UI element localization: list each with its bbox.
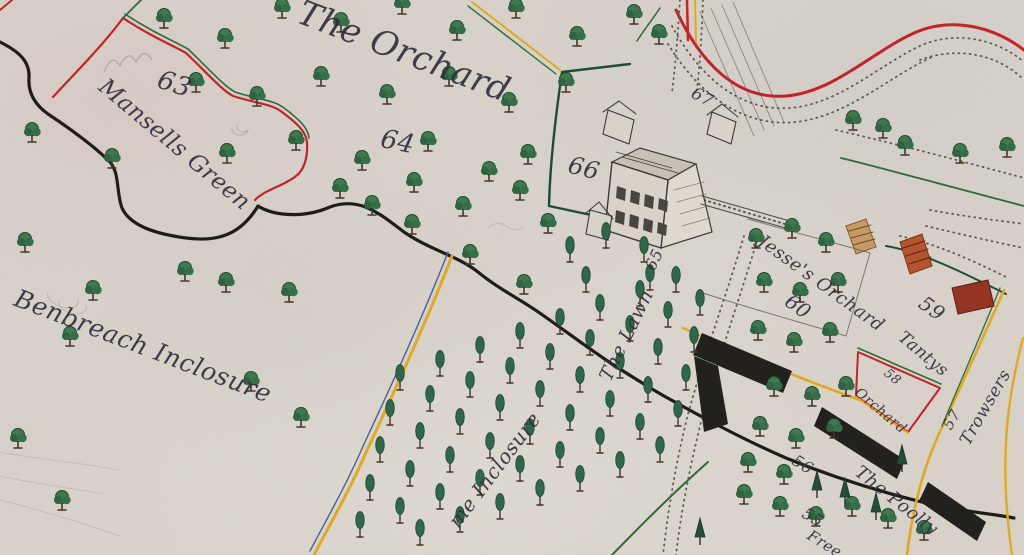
tree-tall-canopy	[672, 267, 681, 284]
tree-round-canopy-shade	[332, 184, 340, 192]
tree-round-canopy-shade	[826, 424, 834, 432]
tree-round-canopy-light	[812, 392, 820, 400]
tree-round-canopy-shade	[880, 514, 888, 522]
tree-tall-canopy	[486, 433, 495, 450]
tree-round-canopy-shade	[845, 116, 853, 124]
tree-round-canopy-shade	[313, 72, 321, 80]
tree-tall-canopy	[596, 295, 605, 312]
tree-round-canopy-light	[301, 413, 309, 421]
tree-round-canopy-shade	[104, 154, 112, 162]
tree-tall-canopy	[546, 344, 555, 361]
estate-map: The Orchard63Mansells Green646667Benbrea…	[0, 0, 1024, 555]
tree-tall-canopy	[690, 327, 699, 344]
tree-tall-canopy	[656, 437, 665, 454]
tree-round-canopy-light	[826, 238, 834, 246]
tree-round-canopy-light	[784, 470, 792, 478]
tree-round-canopy-light	[372, 201, 380, 209]
yellow-strip-top-center	[695, 0, 696, 42]
tree-tall-canopy	[586, 330, 595, 347]
tree-tall-canopy	[436, 351, 445, 368]
tree-tall-canopy	[406, 461, 415, 478]
tree-tall-canopy	[536, 480, 545, 497]
tree-round-canopy-shade	[516, 280, 524, 288]
tree-round-canopy-light	[463, 202, 471, 210]
tree-tall-canopy	[576, 466, 585, 483]
tree-tall-canopy	[566, 237, 575, 254]
tree-round-canopy-shade	[481, 167, 489, 175]
tree-round-canopy-shade	[54, 496, 62, 504]
tree-tall-canopy	[456, 409, 465, 426]
tree-round-canopy-shade	[772, 502, 780, 510]
tree-round-canopy-shade	[804, 392, 812, 400]
tree-round-canopy-light	[227, 149, 235, 157]
tree-round-canopy-shade	[462, 250, 470, 258]
tree-round-canopy-light	[196, 78, 204, 86]
tree-round-canopy-light	[25, 238, 33, 246]
tree-tall-canopy	[496, 494, 505, 511]
tree-round-canopy-light	[524, 280, 532, 288]
tree-tall-canopy	[556, 309, 565, 326]
tree-tall-canopy	[446, 447, 455, 464]
tree-round-canopy-shade	[651, 30, 659, 38]
tree-tall-canopy	[536, 381, 545, 398]
tree-round-canopy-light	[905, 141, 913, 149]
tree-round-canopy-light	[780, 502, 788, 510]
tree-round-canopy-shade	[217, 34, 225, 42]
tree-tall-canopy	[682, 365, 691, 382]
tree-round-canopy-light	[402, 0, 410, 8]
tree-tall-canopy	[636, 414, 645, 431]
tree-round-canopy-light	[18, 434, 26, 442]
tree-tall-canopy	[466, 372, 475, 389]
tree-round-canopy-shade	[569, 32, 577, 40]
tree-round-canopy-shade	[219, 149, 227, 157]
tree-tall-canopy	[396, 365, 405, 382]
tree-tall-canopy	[366, 475, 375, 492]
tree-round-canopy-light	[853, 116, 861, 124]
tree-round-canopy-light	[457, 26, 465, 34]
tree-round-canopy-shade	[999, 143, 1007, 151]
tree-round-canopy-shade	[818, 238, 826, 246]
estate-map-canvas: The Orchard63Mansells Green646667Benbrea…	[0, 0, 1024, 555]
tree-round-canopy-shade	[177, 267, 185, 275]
tree-round-canopy-light	[796, 434, 804, 442]
tree-tall-canopy	[602, 223, 611, 240]
tree-round-canopy-light	[659, 30, 667, 38]
tree-round-canopy-light	[289, 288, 297, 296]
tree-round-canopy-light	[32, 128, 40, 136]
tree-round-canopy-shade	[293, 413, 301, 421]
tree-round-canopy-light	[414, 178, 422, 186]
tree-round-canopy-light	[852, 502, 860, 510]
tree-round-canopy-shade	[736, 490, 744, 498]
tree-tall-canopy	[696, 290, 705, 307]
tree-round-canopy-light	[362, 156, 370, 164]
red-strip-top-center	[687, 0, 688, 40]
tree-round-canopy-light	[282, 4, 290, 12]
tree-round-canopy-light	[548, 219, 556, 227]
tree-round-canopy-light	[185, 267, 193, 275]
tree-round-canopy-shade	[766, 382, 774, 390]
tree-round-canopy-light	[520, 186, 528, 194]
tree-tall-canopy	[516, 323, 525, 340]
tree-round-canopy-shade	[288, 136, 296, 144]
tree-tall-canopy	[416, 423, 425, 440]
tree-tall-canopy	[436, 484, 445, 501]
tree-tall-canopy	[664, 302, 673, 319]
tree-round-canopy-shade	[62, 332, 70, 340]
tree-round-canopy-shade	[406, 178, 414, 186]
tree-round-canopy-light	[321, 72, 329, 80]
tree-tall-canopy	[476, 337, 485, 354]
tree-round-canopy-light	[834, 424, 842, 432]
tree-round-canopy-light	[340, 184, 348, 192]
tree-round-canopy-shade	[404, 220, 412, 228]
tree-round-canopy-light	[846, 382, 854, 390]
tree-tall-canopy	[416, 520, 425, 537]
tree-round-canopy-shade	[752, 422, 760, 430]
tree-round-canopy-shade	[520, 150, 528, 158]
tree-round-canopy-shade	[788, 434, 796, 442]
tree-tall-canopy	[582, 267, 591, 284]
tree-round-canopy-light	[830, 328, 838, 336]
tree-round-canopy-light	[428, 137, 436, 145]
tree-round-canopy-shade	[512, 186, 520, 194]
tree-round-canopy-light	[748, 458, 756, 466]
tree-round-canopy-light	[516, 4, 524, 12]
tree-round-canopy-shade	[822, 328, 830, 336]
tree-round-canopy-light	[257, 92, 265, 100]
tree-round-canopy-light	[744, 490, 752, 498]
tree-tall-canopy	[606, 391, 615, 408]
tree-tall-canopy	[576, 367, 585, 384]
tree-round-canopy-shade	[776, 470, 784, 478]
tree-round-canopy-light	[489, 167, 497, 175]
tree-tall-canopy	[386, 400, 395, 417]
tree-round-canopy-light	[225, 34, 233, 42]
tree-round-canopy-light	[112, 154, 120, 162]
tree-round-canopy-shade	[455, 202, 463, 210]
tree-round-canopy-light	[960, 149, 968, 157]
tree-round-canopy-light	[1007, 143, 1015, 151]
tree-round-canopy-shade	[10, 434, 18, 442]
tree-round-canopy-shade	[740, 458, 748, 466]
tree-round-canopy-light	[226, 278, 234, 286]
tree-round-canopy-shade	[540, 219, 548, 227]
tree-round-canopy-shade	[156, 14, 164, 22]
tree-round-canopy-shade	[394, 0, 402, 8]
tree-round-canopy-shade	[85, 286, 93, 294]
tree-round-canopy-shade	[756, 278, 764, 286]
tree-round-canopy-light	[412, 220, 420, 228]
tree-tall-canopy	[674, 401, 683, 418]
tree-round-canopy-shade	[558, 78, 566, 86]
tree-round-canopy-shade	[364, 201, 372, 209]
tree-tall-canopy	[426, 386, 435, 403]
tree-round-canopy-shade	[748, 234, 756, 242]
tree-tall-canopy	[616, 452, 625, 469]
tree-tall-canopy	[556, 442, 565, 459]
tree-tall-canopy	[396, 498, 405, 515]
tree-tall-canopy	[654, 339, 663, 356]
tree-round-canopy-shade	[838, 382, 846, 390]
tree-round-canopy-shade	[420, 137, 428, 145]
tree-round-canopy-shade	[17, 238, 25, 246]
tree-round-canopy-shade	[508, 4, 516, 12]
tree-round-canopy-light	[792, 224, 800, 232]
tree-round-canopy-light	[387, 90, 395, 98]
tree-tall-canopy	[496, 395, 505, 412]
tree-round-canopy-light	[794, 338, 802, 346]
tree-round-canopy-shade	[897, 141, 905, 149]
tree-round-canopy-light	[528, 150, 536, 158]
tree-round-canopy-light	[760, 422, 768, 430]
tree-round-canopy-light	[164, 14, 172, 22]
tree-round-canopy-light	[888, 514, 896, 522]
tree-round-canopy-light	[509, 98, 517, 106]
tree-round-canopy-shade	[218, 278, 226, 286]
tree-round-canopy-shade	[786, 338, 794, 346]
tree-round-canopy-light	[470, 250, 478, 258]
tree-tall-canopy	[596, 428, 605, 445]
tree-tall-canopy	[376, 437, 385, 454]
tree-round-canopy-light	[883, 124, 891, 132]
tree-round-canopy-shade	[354, 156, 362, 164]
tree-round-canopy-light	[634, 10, 642, 18]
tree-round-canopy-shade	[449, 26, 457, 34]
tree-round-canopy-light	[764, 278, 772, 286]
tree-tall-canopy	[506, 358, 515, 375]
tree-round-canopy-shade	[750, 326, 758, 334]
tree-round-canopy-shade	[249, 92, 257, 100]
tree-round-canopy-shade	[281, 288, 289, 296]
tree-round-canopy-shade	[626, 10, 634, 18]
tree-round-canopy-shade	[952, 149, 960, 157]
tree-round-canopy-shade	[875, 124, 883, 132]
tree-round-canopy-shade	[784, 224, 792, 232]
tree-round-canopy-light	[62, 496, 70, 504]
tree-round-canopy-light	[774, 382, 782, 390]
tree-round-canopy-light	[577, 32, 585, 40]
tree-round-canopy-shade	[379, 90, 387, 98]
tree-tall-canopy	[566, 405, 575, 422]
tree-round-canopy-light	[93, 286, 101, 294]
tree-round-canopy-shade	[24, 128, 32, 136]
tree-round-canopy-shade	[274, 4, 282, 12]
tree-round-canopy-light	[566, 78, 574, 86]
tree-round-canopy-light	[296, 136, 304, 144]
tree-tall-canopy	[356, 512, 365, 529]
tree-tall-canopy	[644, 377, 653, 394]
tree-round-canopy-light	[758, 326, 766, 334]
